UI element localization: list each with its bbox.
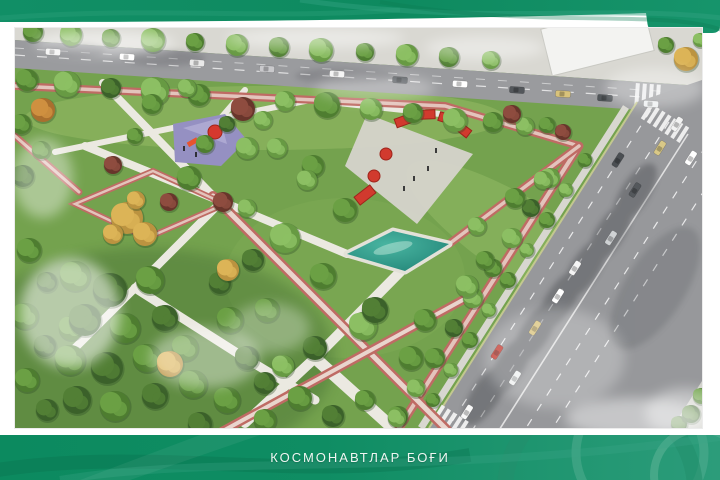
- presentation-slide: КОСМОНАВТЛАР БОҒИ: [0, 0, 720, 480]
- slide-caption: КОСМОНАВТЛАР БОҒИ: [0, 435, 720, 480]
- bottom-green-banner: КОСМОНАВТЛАР БОҒИ: [0, 435, 720, 480]
- park-aerial-render: [15, 28, 702, 428]
